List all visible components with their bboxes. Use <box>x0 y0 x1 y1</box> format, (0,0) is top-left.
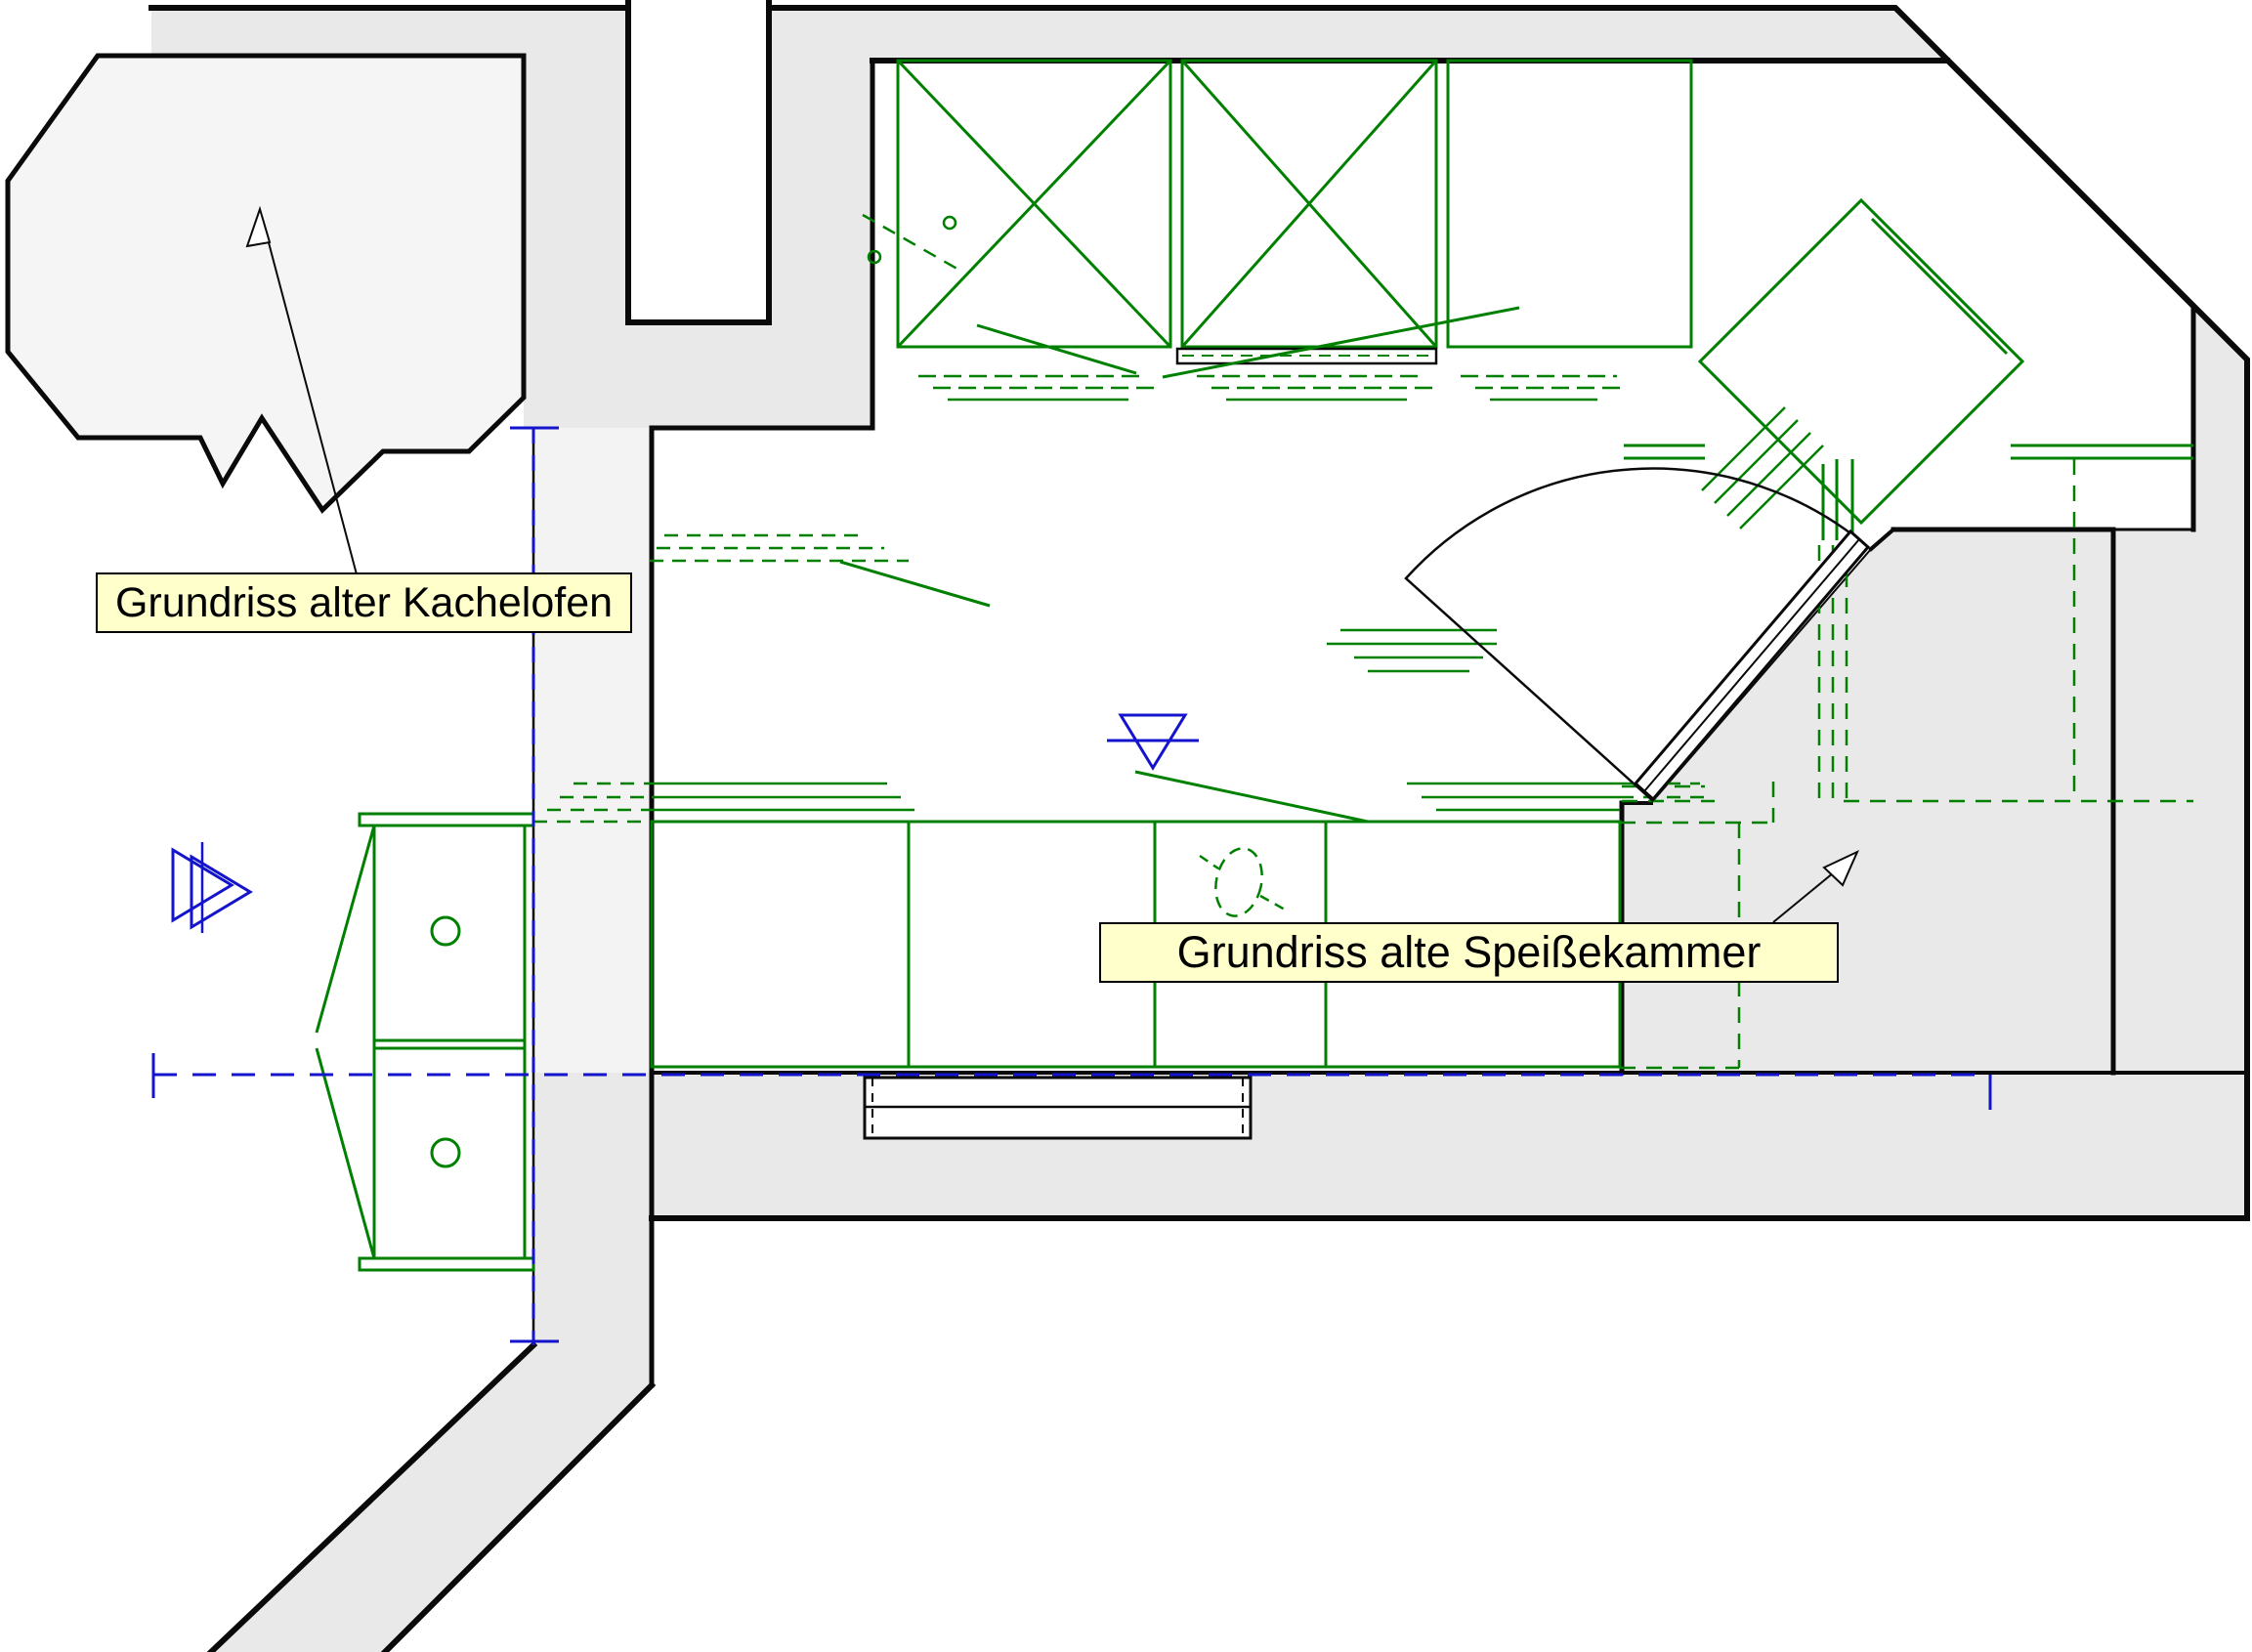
label-speissekammer: Grundriss alte Speißekammer <box>1099 922 1839 983</box>
old-chimney-strip <box>533 428 652 1073</box>
label-kachelofen: Grundriss alter Kachelofen <box>96 572 632 633</box>
stove-footprint-octagon <box>8 56 524 510</box>
tall-cabinet-with-knobs <box>317 814 533 1270</box>
window-in-wall <box>865 1078 1251 1138</box>
floor-plan-canvas: Grundriss alter Kachelofen Grundriss alt… <box>0 0 2252 1652</box>
datum-double-triangle-symbol <box>173 842 250 933</box>
floor-plan-drawing <box>0 0 2252 1652</box>
